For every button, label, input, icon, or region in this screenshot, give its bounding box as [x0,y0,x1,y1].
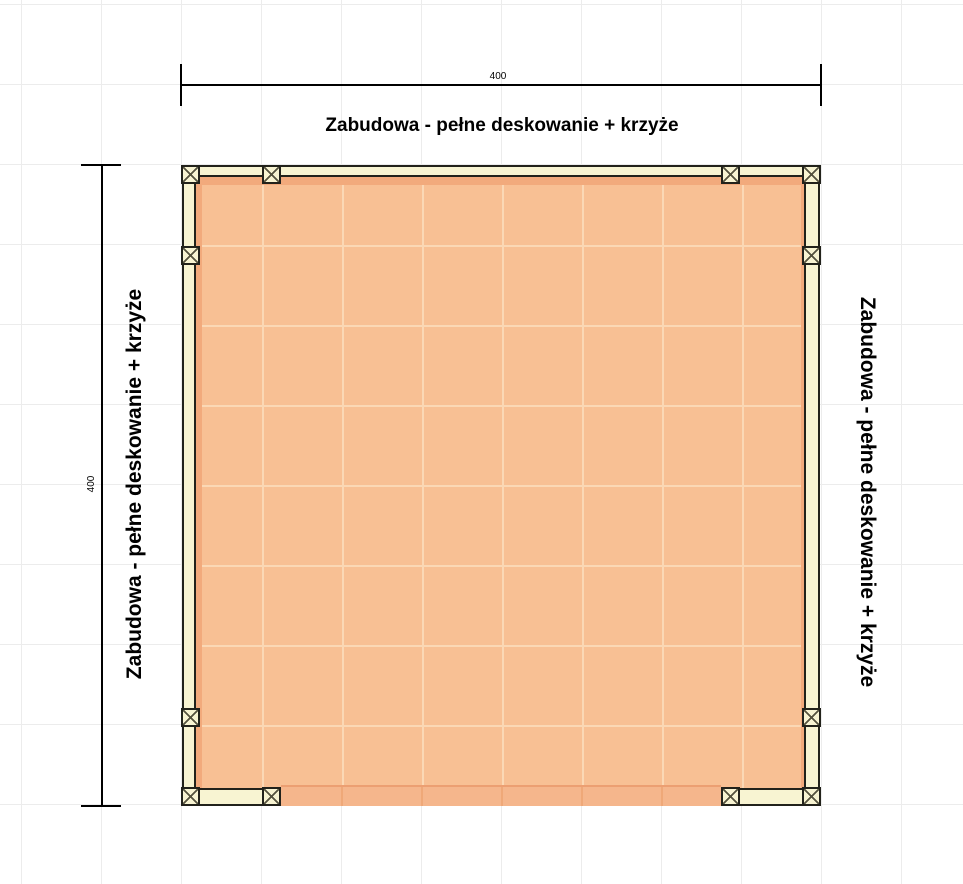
front-deck-band [281,785,721,806]
dimension-value-top: 400 [490,72,507,82]
structure-title-top: Zabudowa - pełne deskowanie + krzyże [325,115,678,137]
structure-label-right: Zabudowa - pełne deskowanie + krzyże [855,297,879,687]
dimension-line-top [181,84,821,86]
structure-label-left: Zabudowa - pełne deskowanie + krzyże [123,289,147,679]
post-symbol [721,165,740,184]
post-symbol [802,246,821,265]
dimension-tick-left-bottom [81,805,121,807]
post-symbol [262,165,281,184]
dimension-tick-top-right [820,64,822,106]
post-symbol [181,787,200,806]
floor-deck [195,177,805,790]
post-symbol [802,787,821,806]
drawing-canvas: 400 400 Zabudowa - pełne deskowanie + kr… [0,0,963,884]
floor-deck-grid [202,185,801,790]
post-symbol [721,787,740,806]
dimension-value-left: 400 [87,476,97,493]
dimension-line-left [101,165,103,806]
post-symbol [181,165,200,184]
post-symbol [802,708,821,727]
post-symbol [181,708,200,727]
post-symbol [802,165,821,184]
dimension-tick-top-left [180,64,182,106]
post-symbol [181,246,200,265]
post-symbol [262,787,281,806]
dimension-tick-left-top [81,164,121,166]
